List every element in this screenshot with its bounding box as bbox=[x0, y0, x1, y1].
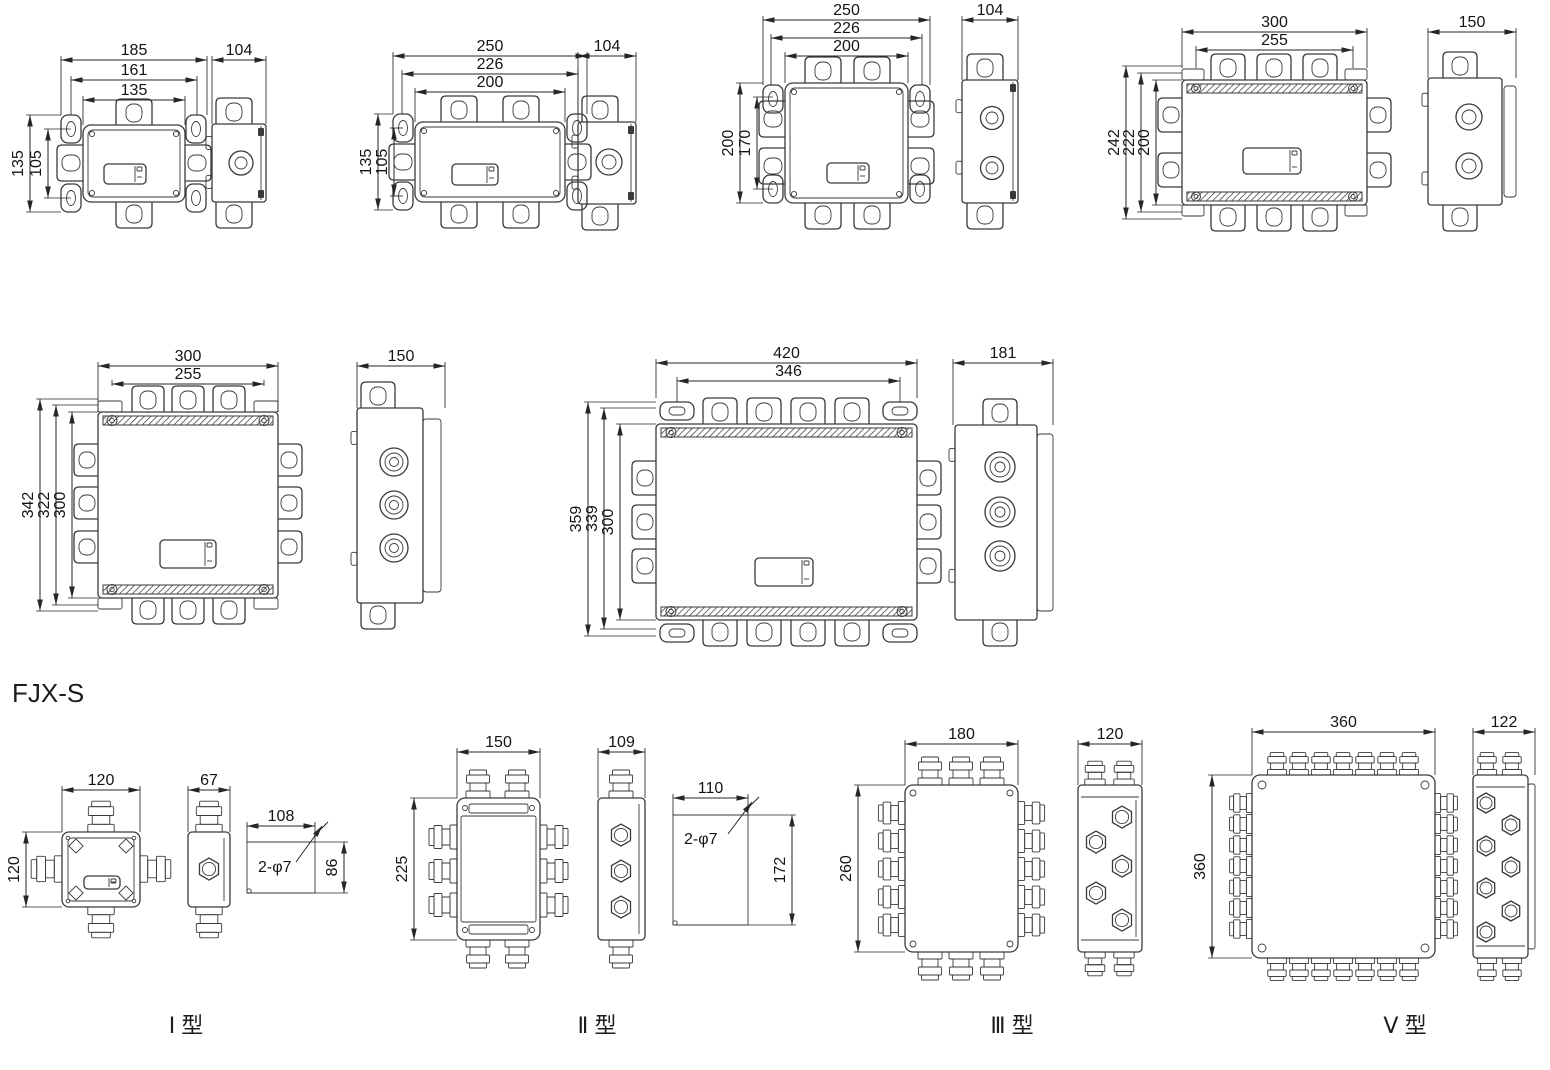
cable-gland bbox=[132, 386, 164, 412]
cable-gland bbox=[1289, 753, 1308, 775]
cable-gland bbox=[791, 398, 825, 424]
dimension-label: 346 bbox=[775, 363, 802, 380]
cable-gland bbox=[1230, 919, 1252, 938]
mounting-slot bbox=[660, 624, 694, 642]
cable-gland bbox=[1211, 205, 1245, 231]
dimension-label: 120 bbox=[1097, 726, 1124, 743]
dimension-label: 250 bbox=[477, 38, 504, 55]
box1-side-view: 104 bbox=[206, 42, 266, 228]
dimension-label: 420 bbox=[773, 345, 800, 362]
cable-gland bbox=[1230, 877, 1252, 896]
type1-side-view: 67 bbox=[188, 772, 230, 938]
cable-gland bbox=[967, 54, 1003, 80]
hex-fitting bbox=[1087, 882, 1106, 904]
cable-gland bbox=[1085, 952, 1105, 976]
cable-gland bbox=[1435, 793, 1457, 812]
label-window bbox=[84, 876, 120, 889]
dimension-label: 300 bbox=[1261, 14, 1288, 31]
drawing-sheet: 1851611351351051042502262001351051042502… bbox=[0, 0, 1550, 1070]
cable-gland bbox=[540, 859, 568, 883]
dimension-label: 172 bbox=[772, 857, 789, 884]
mounting-ear bbox=[567, 114, 587, 142]
cable-gland bbox=[1502, 958, 1521, 980]
dimension-label: 109 bbox=[608, 734, 635, 751]
cable-gland bbox=[1399, 958, 1418, 980]
cable-gland bbox=[1230, 793, 1252, 812]
cable-gland bbox=[441, 202, 477, 228]
cable-gland bbox=[1230, 898, 1252, 917]
dimension-label: 185 bbox=[121, 42, 148, 59]
dimension-label: 120 bbox=[88, 772, 115, 789]
box3-side-view: 104 bbox=[956, 2, 1018, 229]
corner-mark bbox=[119, 886, 133, 900]
cable-gland bbox=[1085, 761, 1105, 785]
cable-gland bbox=[1018, 858, 1045, 881]
cable-gland bbox=[632, 461, 656, 495]
type5-figure: 360360122Ⅴ 型 bbox=[1192, 714, 1535, 1038]
box5-figure: 300255342322300150 bbox=[20, 348, 445, 629]
dimension-label: 255 bbox=[175, 366, 202, 383]
cable-gland bbox=[116, 99, 152, 125]
dimension-label: 67 bbox=[200, 772, 218, 789]
cable-gland bbox=[1311, 958, 1330, 980]
hex-fitting bbox=[1477, 793, 1494, 813]
type2-figure: 1502251091101722-φ7Ⅱ 型 bbox=[394, 734, 796, 1038]
cable-gland bbox=[74, 444, 98, 476]
cable-gland bbox=[1435, 814, 1457, 833]
cable-gland bbox=[878, 802, 905, 825]
cable-gland bbox=[1377, 958, 1396, 980]
cable-gland bbox=[1477, 958, 1496, 980]
cable-gland bbox=[1158, 153, 1182, 187]
label-window bbox=[452, 164, 498, 185]
cable-gland bbox=[1230, 814, 1252, 833]
dimension-label: 135 bbox=[358, 149, 375, 176]
hole-callout: 2-φ7 bbox=[684, 831, 718, 848]
cable-gland bbox=[429, 825, 457, 849]
dimension-label: 150 bbox=[388, 348, 415, 365]
cable-gland bbox=[196, 907, 222, 938]
cable-gland bbox=[1018, 886, 1045, 909]
type-label: Ⅲ 型 bbox=[990, 1013, 1033, 1038]
cable-gland bbox=[805, 203, 841, 229]
cable-gland bbox=[917, 505, 941, 539]
box2-figure: 250226200135105104 bbox=[358, 38, 636, 230]
mounting-ear bbox=[910, 175, 930, 203]
cable-gland bbox=[1355, 753, 1374, 775]
type1-figure: 12012067108862-φ7Ⅰ 型 bbox=[6, 772, 348, 1038]
dimension-label: 110 bbox=[698, 780, 724, 797]
dimension-label: 105 bbox=[374, 149, 391, 176]
cable-gland bbox=[1377, 753, 1396, 775]
cable-gland bbox=[918, 757, 942, 785]
cable-gland bbox=[1018, 914, 1045, 937]
cable-gland bbox=[505, 940, 529, 968]
corner-mark bbox=[69, 886, 83, 900]
cable-gland bbox=[1230, 856, 1252, 875]
cable-gland bbox=[1367, 153, 1391, 187]
cable-gland bbox=[949, 952, 973, 980]
dimension-label: 260 bbox=[838, 855, 855, 882]
dimension-label: 255 bbox=[1261, 32, 1288, 49]
label-window bbox=[104, 164, 146, 184]
cable-gland bbox=[632, 505, 656, 539]
corner-mark bbox=[69, 839, 83, 853]
cable-gland bbox=[917, 461, 941, 495]
cable-gland bbox=[703, 398, 737, 424]
cable-gland bbox=[747, 620, 781, 646]
mounting-slot bbox=[660, 402, 694, 420]
cable-gland bbox=[216, 98, 252, 124]
cable-gland bbox=[503, 96, 539, 122]
cable-gland bbox=[361, 382, 395, 408]
mounting-ear bbox=[186, 184, 206, 212]
cable-gland bbox=[74, 487, 98, 519]
cable-gland bbox=[609, 940, 633, 968]
dimension-label: 300 bbox=[175, 348, 202, 365]
dimension-label: 200 bbox=[720, 130, 737, 157]
cable-gland bbox=[441, 96, 477, 122]
cable-gland bbox=[213, 598, 245, 624]
corner-mark bbox=[119, 839, 133, 853]
cable-gland bbox=[835, 398, 869, 424]
type1-mounting-plate: 108862-φ7 bbox=[247, 808, 348, 893]
dimension-label: 200 bbox=[477, 74, 504, 91]
dimension-label: 150 bbox=[485, 734, 512, 751]
cable-gland bbox=[1399, 753, 1418, 775]
dimension-label: 135 bbox=[121, 82, 148, 99]
cable-gland bbox=[429, 893, 457, 917]
cable-gland bbox=[1502, 753, 1521, 775]
cable-gland bbox=[505, 770, 529, 798]
hex-fitting bbox=[1502, 857, 1519, 877]
box4-front-view bbox=[1158, 54, 1391, 231]
cable-gland bbox=[582, 204, 618, 230]
cable-gland bbox=[1435, 856, 1457, 875]
cable-gland bbox=[1230, 835, 1252, 854]
box4-side-view: 150 bbox=[1422, 14, 1516, 231]
hex-fitting bbox=[1502, 815, 1519, 835]
cable-gland bbox=[1435, 877, 1457, 896]
cable-gland bbox=[216, 202, 252, 228]
dimension-label: 104 bbox=[594, 38, 621, 55]
cable-gland bbox=[31, 856, 62, 882]
type1-front-view bbox=[31, 801, 171, 938]
hex-fitting bbox=[1113, 909, 1132, 931]
technical-drawings: 1851611351351051042502262001351051042502… bbox=[0, 0, 1550, 1070]
cable-gland bbox=[466, 940, 490, 968]
hex-fitting bbox=[1477, 922, 1494, 942]
cable-gland bbox=[983, 399, 1017, 425]
cable-gland bbox=[1303, 54, 1337, 80]
box6-dimensions: 420346359339300 bbox=[568, 345, 917, 636]
type-label: Ⅰ 型 bbox=[169, 1013, 204, 1038]
cable-gland bbox=[361, 603, 395, 629]
box4-dimensions: 300255242222200 bbox=[1106, 14, 1367, 219]
dimension-label: 250 bbox=[833, 2, 860, 19]
cable-gland bbox=[1018, 802, 1045, 825]
type5-side-view: 122 bbox=[1473, 714, 1535, 980]
box5-dimensions: 300255342322300 bbox=[20, 348, 278, 611]
cable-gland bbox=[1018, 830, 1045, 853]
type-label: Ⅴ 型 bbox=[1383, 1013, 1426, 1038]
box6-figure: 420346359339300181 bbox=[568, 345, 1053, 646]
cable-gland bbox=[967, 203, 1003, 229]
box6-side-view: 181 bbox=[949, 345, 1053, 646]
hex-fitting bbox=[200, 858, 219, 880]
cable-gland bbox=[791, 620, 825, 646]
cable-gland bbox=[1435, 919, 1457, 938]
cable-gland bbox=[278, 487, 302, 519]
cable-gland bbox=[747, 398, 781, 424]
type2-dimensions: 150225 bbox=[394, 734, 540, 940]
hex-fitting bbox=[1087, 831, 1106, 853]
box2-front-view bbox=[389, 96, 591, 228]
cable-gland bbox=[172, 386, 204, 412]
cable-gland bbox=[140, 856, 171, 882]
dimension-label: 339 bbox=[584, 505, 601, 532]
hex-fitting bbox=[1477, 836, 1494, 856]
type2-front-view bbox=[429, 770, 568, 968]
cable-gland bbox=[878, 886, 905, 909]
mounting-ear bbox=[910, 85, 930, 113]
box5-front-view bbox=[74, 386, 302, 624]
cable-gland bbox=[1158, 98, 1182, 132]
dimension-label: 200 bbox=[1136, 129, 1153, 156]
cable-gland bbox=[1435, 835, 1457, 854]
dimension-label: 161 bbox=[121, 62, 148, 79]
label-window bbox=[160, 540, 216, 568]
cable-gland bbox=[196, 801, 222, 832]
cable-gland bbox=[980, 952, 1004, 980]
cable-gland bbox=[759, 148, 785, 184]
dimension-label: 300 bbox=[600, 509, 617, 536]
cable-gland bbox=[1477, 753, 1496, 775]
dimension-label: 180 bbox=[948, 726, 975, 743]
dimension-label: 226 bbox=[833, 20, 860, 37]
box4-figure: 300255242222200150 bbox=[1106, 14, 1516, 231]
cable-gland bbox=[854, 57, 890, 83]
cable-gland bbox=[1267, 958, 1286, 980]
dimension-label: 360 bbox=[1330, 714, 1357, 731]
cable-gland bbox=[609, 770, 633, 798]
cable-gland bbox=[805, 57, 841, 83]
cable-gland bbox=[116, 202, 152, 228]
dimension-label: 360 bbox=[1192, 853, 1209, 880]
mounting-ear bbox=[567, 182, 587, 210]
cable-gland bbox=[1367, 98, 1391, 132]
dimension-label: 105 bbox=[28, 150, 45, 177]
cable-gland bbox=[503, 202, 539, 228]
dimension-label: 226 bbox=[477, 56, 504, 73]
cable-gland bbox=[540, 893, 568, 917]
dimension-label: 170 bbox=[737, 130, 754, 157]
cable-gland bbox=[1435, 898, 1457, 917]
cable-gland bbox=[918, 952, 942, 980]
cable-gland bbox=[1333, 753, 1352, 775]
cable-gland bbox=[1267, 753, 1286, 775]
label-window bbox=[827, 163, 869, 183]
dimension-label: 200 bbox=[833, 38, 860, 55]
cable-gland bbox=[466, 770, 490, 798]
hex-fitting bbox=[1113, 806, 1132, 828]
cable-gland bbox=[1211, 54, 1245, 80]
mounting-ear bbox=[186, 115, 206, 143]
cable-gland bbox=[213, 386, 245, 412]
box1-figure: 185161135135105104 bbox=[10, 42, 266, 228]
cable-gland bbox=[854, 203, 890, 229]
cable-gland bbox=[1114, 761, 1134, 785]
mounting-ear bbox=[763, 85, 783, 113]
dimension-label: 104 bbox=[977, 2, 1004, 19]
cable-gland bbox=[949, 757, 973, 785]
hex-fitting bbox=[612, 824, 631, 846]
cable-gland bbox=[1355, 958, 1374, 980]
cable-gland bbox=[172, 598, 204, 624]
cable-gland bbox=[983, 620, 1017, 646]
cable-gland bbox=[389, 144, 415, 180]
type3-side-view: 120 bbox=[1078, 726, 1142, 976]
dimension-label: 86 bbox=[324, 859, 341, 877]
mounting-slot bbox=[883, 402, 917, 420]
cable-gland bbox=[878, 914, 905, 937]
box5-side-view: 150 bbox=[351, 348, 445, 629]
cable-gland bbox=[278, 531, 302, 563]
mounting-slot bbox=[883, 624, 917, 642]
dimension-label: 300 bbox=[52, 492, 69, 519]
hex-fitting bbox=[612, 860, 631, 882]
box3-figure: 250226200200170104 bbox=[720, 2, 1018, 229]
dimension-label: 122 bbox=[1491, 714, 1518, 731]
dimension-label: 322 bbox=[36, 492, 53, 519]
hex-fitting bbox=[1477, 878, 1494, 898]
box6-front-view bbox=[632, 398, 941, 646]
type5-front-view bbox=[1230, 753, 1458, 981]
dimension-label: 342 bbox=[20, 492, 37, 519]
box2-side-view: 104 bbox=[572, 38, 636, 230]
cable-gland bbox=[1303, 205, 1337, 231]
cable-gland bbox=[74, 531, 98, 563]
cable-gland bbox=[1311, 753, 1330, 775]
cable-gland bbox=[1333, 958, 1352, 980]
type3-front-view bbox=[878, 757, 1044, 980]
dimension-label: 181 bbox=[990, 345, 1017, 362]
type3-dimensions: 180260 bbox=[838, 726, 1018, 952]
cable-gland bbox=[908, 148, 934, 184]
cable-gland bbox=[917, 549, 941, 583]
box1-dimensions: 185161135135105 bbox=[10, 42, 207, 212]
type2-mounting-plate: 1101722-φ7 bbox=[673, 780, 796, 925]
cable-gland bbox=[1257, 205, 1291, 231]
type2-side-view: 109 bbox=[598, 734, 645, 968]
cable-gland bbox=[878, 830, 905, 853]
cable-gland bbox=[88, 801, 114, 832]
cable-gland bbox=[878, 858, 905, 881]
cable-gland bbox=[429, 859, 457, 883]
label-window bbox=[1243, 148, 1301, 174]
cable-gland bbox=[1257, 54, 1291, 80]
cable-gland bbox=[835, 620, 869, 646]
cable-gland bbox=[1289, 958, 1308, 980]
cable-gland bbox=[980, 757, 1004, 785]
type-label: Ⅱ 型 bbox=[578, 1013, 617, 1038]
type5-dimensions: 360360 bbox=[1192, 714, 1435, 958]
cable-gland bbox=[540, 825, 568, 849]
box1-front-view bbox=[57, 99, 211, 228]
cable-gland bbox=[1114, 952, 1134, 976]
section-title: FJX-S bbox=[12, 678, 84, 708]
cable-gland bbox=[632, 549, 656, 583]
hole-callout: 2-φ7 bbox=[258, 859, 292, 876]
dimension-label: 120 bbox=[6, 856, 23, 883]
cable-gland bbox=[57, 145, 83, 181]
label-window bbox=[755, 558, 813, 586]
box3-dimensions: 250226200200170 bbox=[720, 2, 930, 203]
dimension-label: 150 bbox=[1459, 14, 1486, 31]
dimension-label: 225 bbox=[394, 856, 411, 883]
cable-gland bbox=[1443, 52, 1477, 78]
dimension-label: 104 bbox=[226, 42, 253, 59]
cable-gland bbox=[1443, 205, 1477, 231]
dimension-label: 108 bbox=[268, 808, 295, 825]
dimension-label: 359 bbox=[568, 506, 585, 533]
cable-gland bbox=[132, 598, 164, 624]
hex-fitting bbox=[612, 896, 631, 918]
cable-gland bbox=[88, 907, 114, 938]
cable-gland bbox=[278, 444, 302, 476]
dimension-label: 135 bbox=[10, 150, 27, 177]
hex-fitting bbox=[1502, 901, 1519, 921]
cable-gland bbox=[703, 620, 737, 646]
hex-fitting bbox=[1113, 855, 1132, 877]
type3-figure: 180260120Ⅲ 型 bbox=[838, 726, 1142, 1038]
